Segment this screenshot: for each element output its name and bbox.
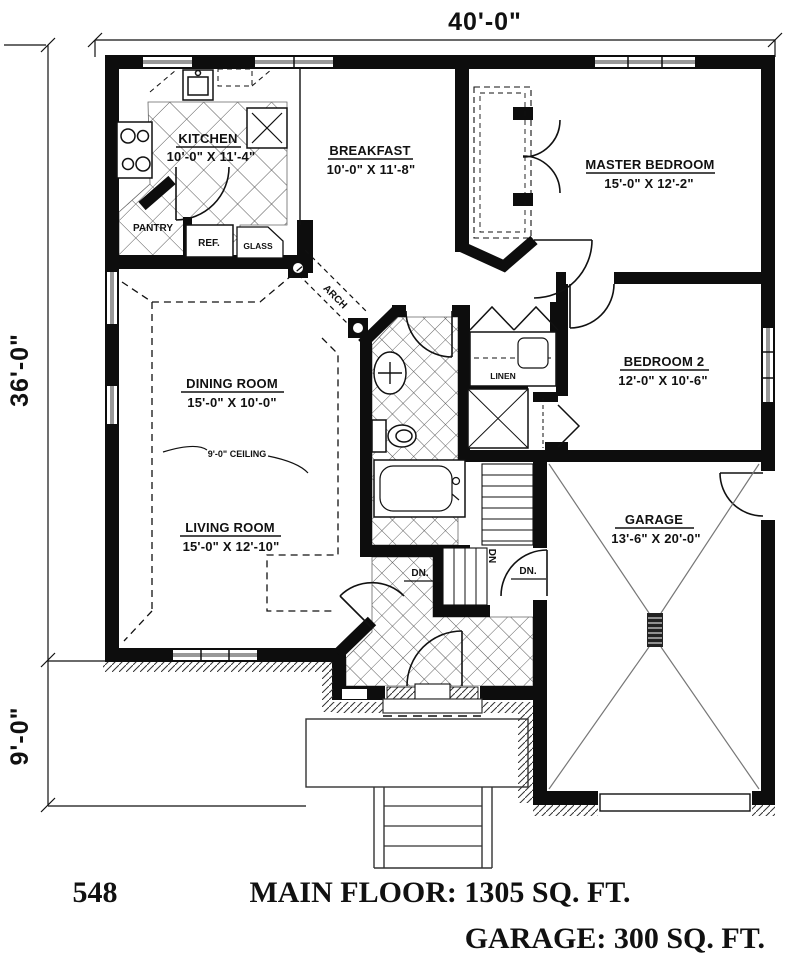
svg-text:LIVING ROOM: LIVING ROOM bbox=[185, 520, 275, 535]
arch-passage: ARCH bbox=[288, 250, 368, 338]
svg-text:10'-0" X 11'-4": 10'-0" X 11'-4" bbox=[167, 149, 256, 164]
ceiling-leader-right bbox=[268, 456, 308, 473]
master-bedroom-window bbox=[595, 57, 695, 67]
footer: 548 MAIN FLOOR: 1305 SQ. FT. GARAGE: 300… bbox=[73, 876, 766, 955]
svg-text:10'-0" X 11'-8": 10'-0" X 11'-8" bbox=[327, 162, 416, 177]
svg-text:15'-0" X 12'-10": 15'-0" X 12'-10" bbox=[183, 539, 280, 554]
master-double-door-bottom bbox=[523, 156, 560, 193]
dining-window-upper bbox=[107, 272, 117, 324]
master-double-door-top bbox=[523, 120, 560, 157]
breakfast-label: BREAKFAST 10'-0" X 11'-8" bbox=[327, 143, 416, 177]
garage-overhead-door bbox=[600, 794, 750, 811]
bedroom2-window bbox=[763, 328, 773, 402]
floor-plan-page: 40'-0" 36'-0" 9'-0" bbox=[0, 0, 800, 968]
shower bbox=[468, 389, 528, 448]
arch-label: ARCH bbox=[321, 283, 349, 311]
living-room-label: LIVING ROOM 15'-0" X 12'-10" bbox=[180, 520, 281, 554]
bedroom2-bifold-door bbox=[558, 405, 579, 447]
dishwasher-dashed bbox=[218, 69, 252, 86]
garage-area: GARAGE: 300 SQ. FT. bbox=[465, 922, 765, 955]
down-label-garage: DN. bbox=[519, 566, 536, 577]
svg-text:MASTER BEDROOM: MASTER BEDROOM bbox=[585, 157, 714, 172]
dining-window-lower bbox=[107, 386, 117, 424]
kitchen-island bbox=[247, 108, 287, 148]
glass-label: GLASS bbox=[243, 241, 273, 251]
svg-text:DINING ROOM: DINING ROOM bbox=[186, 376, 278, 391]
svg-text:KITCHEN: KITCHEN bbox=[178, 131, 237, 146]
linen-bifold-doors bbox=[470, 307, 558, 330]
down-label-foyer: DN. bbox=[411, 568, 428, 579]
linen-closet: LINEN bbox=[470, 307, 558, 386]
ceiling-note: 9'-0" CEILING bbox=[208, 449, 266, 459]
svg-text:GARAGE: GARAGE bbox=[625, 512, 683, 527]
svg-text:15'-0" X 12'-2": 15'-0" X 12'-2" bbox=[604, 176, 693, 191]
stove bbox=[117, 122, 152, 178]
front-door-sidelight-right bbox=[450, 687, 478, 699]
porch-steps bbox=[374, 787, 492, 868]
svg-text:13'-6" X 20'-0": 13'-6" X 20'-0" bbox=[611, 531, 700, 546]
master-bedroom-label: MASTER BEDROOM 15'-0" X 12'-2" bbox=[585, 157, 715, 191]
garage-side-door bbox=[720, 473, 763, 516]
porch-slab bbox=[306, 719, 528, 787]
bedroom2-closet bbox=[543, 398, 579, 448]
front-door-threshold bbox=[415, 684, 450, 699]
linen-label: LINEN bbox=[490, 371, 516, 381]
floor-plan-svg: 40'-0" 36'-0" 9'-0" bbox=[0, 0, 800, 968]
ref-label: REF. bbox=[198, 238, 220, 249]
plan-number: 548 bbox=[73, 876, 118, 909]
bathtub bbox=[374, 460, 465, 517]
pedestal-sink bbox=[374, 352, 406, 394]
front-door-sidelight-left bbox=[387, 687, 415, 699]
breakfast-window bbox=[255, 57, 333, 67]
svg-text:12'-0" X 10'-6": 12'-0" X 10'-6" bbox=[618, 373, 707, 388]
bedroom2-label: BEDROOM 2 12'-0" X 10'-6" bbox=[618, 354, 709, 388]
svg-text:BEDROOM 2: BEDROOM 2 bbox=[624, 354, 705, 369]
svg-text:BREAKFAST: BREAKFAST bbox=[329, 143, 410, 158]
garage-label: GARAGE 13'-6" X 20'-0" bbox=[611, 512, 700, 546]
dimension-height-porch-label: 9'-0" bbox=[6, 707, 34, 766]
down-label-stairs: DN bbox=[486, 549, 497, 563]
living-room-window bbox=[173, 650, 257, 660]
svg-text:15'-0" X 10'-0": 15'-0" X 10'-0" bbox=[187, 395, 276, 410]
main-floor-area: MAIN FLOOR: 1305 SQ. FT. bbox=[249, 876, 630, 909]
ceiling-outline: 9'-0" CEILING bbox=[122, 265, 338, 641]
kitchen-window bbox=[143, 57, 192, 67]
stoop bbox=[383, 699, 482, 713]
dining-room-label: DINING ROOM 15'-0" X 10'-0" bbox=[181, 376, 284, 410]
dimension-width-label: 40'-0" bbox=[448, 8, 522, 36]
pantry-label: PANTRY bbox=[133, 223, 173, 234]
dimension-height-main-label: 36'-0" bbox=[6, 333, 34, 407]
ceiling-leader-left bbox=[163, 446, 207, 452]
bedroom2-door bbox=[570, 284, 614, 328]
